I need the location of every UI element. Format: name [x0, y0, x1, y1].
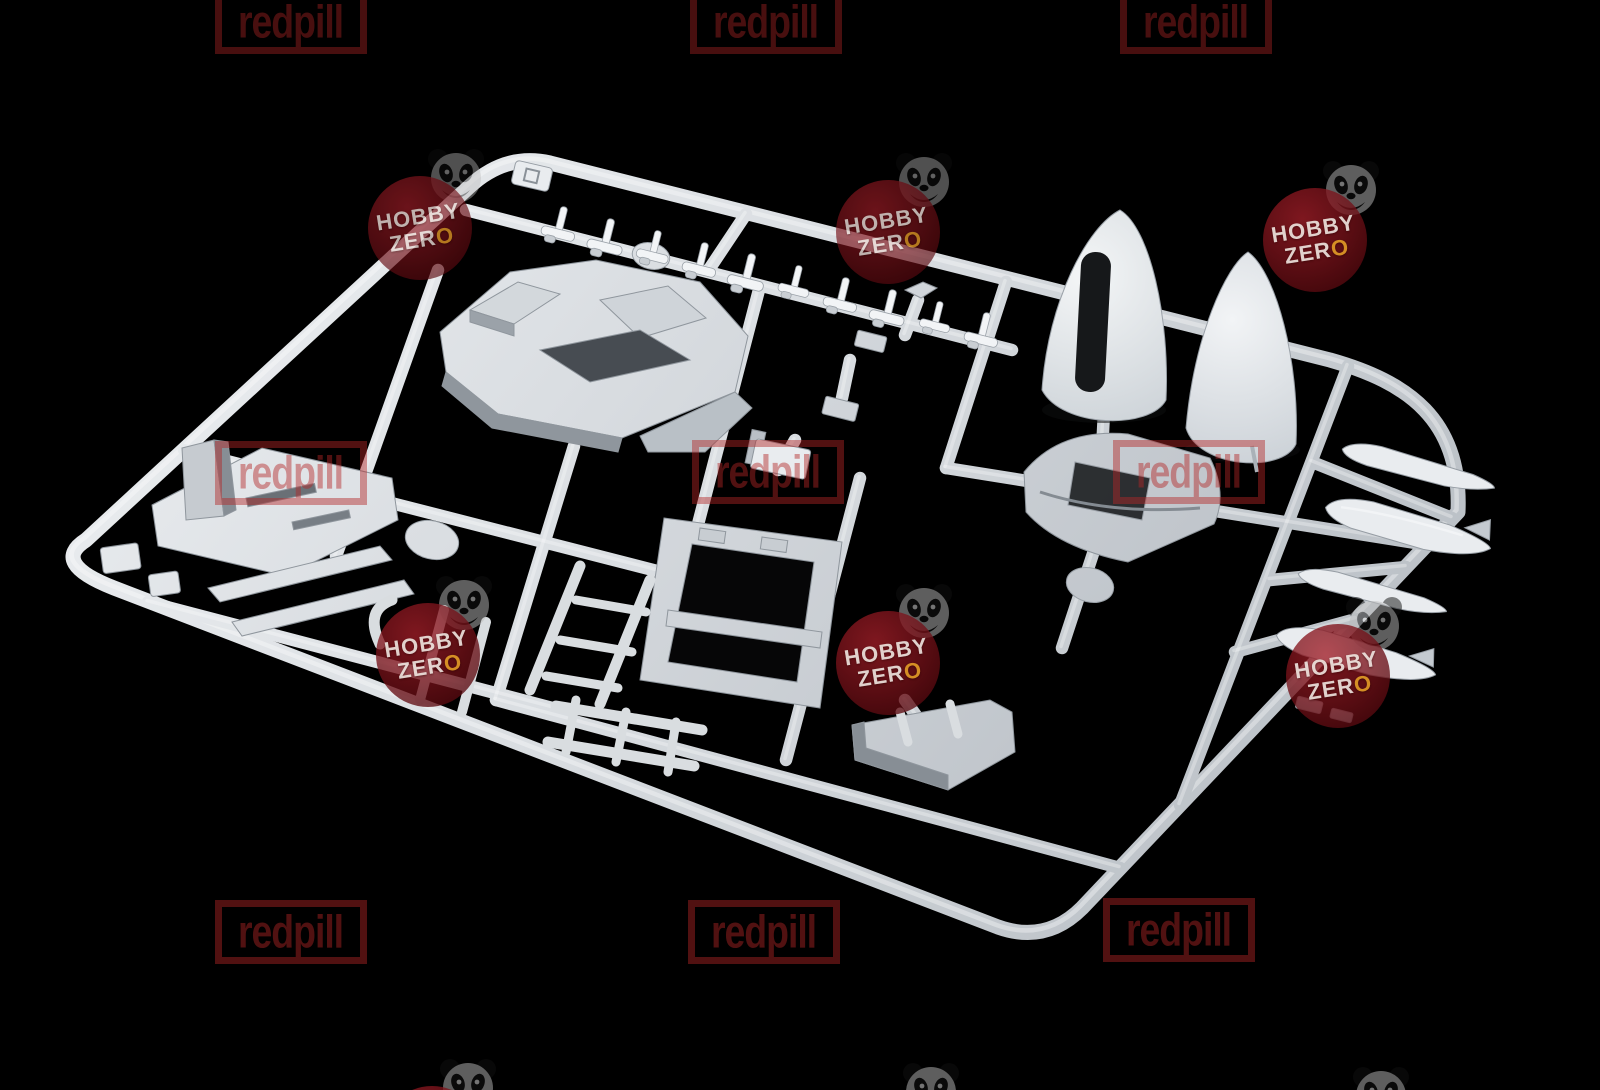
redpill-label: redpill: [238, 0, 343, 45]
hobbyzero-watermark: HOBBYZERO: [836, 611, 940, 715]
redpill-watermark: redpill: [1120, 0, 1272, 54]
hobbyzero-watermark: HOBBYZERO: [380, 1086, 484, 1090]
redpill-watermark: redpill: [690, 0, 842, 54]
redpill-watermark: redpill: [215, 0, 367, 54]
redpill-watermark: redpill: [1113, 440, 1265, 504]
redpill-label: redpill: [1126, 907, 1231, 953]
nose-cone-part-slotted: [1042, 210, 1167, 423]
hobbyzero-watermark: HOBBYZERO: [368, 176, 472, 280]
photo-stage: redpill redpill redpill redpill redpill …: [0, 0, 1600, 1090]
panda-icon: [1349, 1064, 1413, 1090]
hobbyzero-text-o: O: [442, 649, 464, 677]
cockpit-floor-part: [440, 260, 752, 452]
redpill-watermark: redpill: [688, 900, 840, 964]
hobbyzero-text-o: O: [1352, 670, 1374, 698]
seat-frame-part: [640, 518, 842, 708]
hobbyzero-watermark: HOBBYZERO: [836, 180, 940, 284]
redpill-label: redpill: [238, 450, 343, 496]
hobbyzero-text-o: O: [1329, 234, 1351, 262]
redpill-label: redpill: [711, 909, 816, 955]
redpill-watermark: redpill: [1103, 898, 1255, 962]
redpill-label: redpill: [1136, 449, 1241, 495]
hobbyzero-text-o: O: [902, 657, 924, 685]
redpill-watermark: redpill: [215, 441, 367, 505]
redpill-label: redpill: [238, 909, 343, 955]
redpill-label: redpill: [715, 449, 820, 495]
redpill-label: redpill: [1143, 0, 1248, 45]
redpill-watermark: redpill: [215, 900, 367, 964]
hobbyzero-watermark: HOBBYZERO: [1286, 624, 1390, 728]
redpill-watermark: redpill: [692, 440, 844, 504]
hobbyzero-text-o: O: [902, 226, 924, 254]
hobbyzero-text-o: O: [434, 222, 456, 250]
hobbyzero-watermark: HOBBYZERO: [376, 603, 480, 707]
redpill-label: redpill: [713, 0, 818, 45]
hobbyzero-watermark: HOBBYZERO: [1263, 188, 1367, 292]
